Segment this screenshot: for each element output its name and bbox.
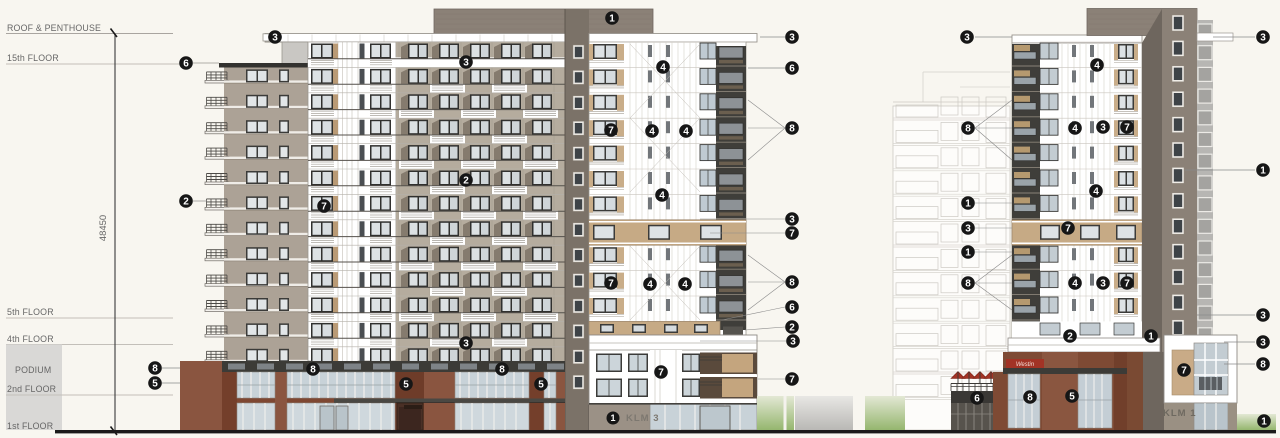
svg-text:3: 3 [789, 33, 795, 44]
svg-text:ROOF & PENTHOUSE: ROOF & PENTHOUSE [7, 23, 101, 33]
svg-text:5th FLOOR: 5th FLOOR [7, 307, 54, 317]
svg-text:7: 7 [608, 126, 614, 137]
svg-text:2: 2 [183, 197, 189, 208]
svg-text:1: 1 [1148, 332, 1154, 343]
svg-text:2: 2 [463, 176, 469, 187]
svg-text:1st FLOOR: 1st FLOOR [7, 421, 53, 431]
svg-text:7: 7 [321, 202, 327, 213]
svg-text:8: 8 [499, 365, 505, 376]
svg-text:3: 3 [1260, 338, 1266, 349]
svg-text:6: 6 [183, 59, 189, 70]
svg-text:2nd FLOOR: 2nd FLOOR [7, 384, 56, 394]
svg-text:4: 4 [1093, 187, 1099, 198]
svg-text:8: 8 [1260, 360, 1266, 371]
svg-text:1: 1 [965, 248, 971, 259]
svg-text:8: 8 [1027, 393, 1033, 404]
svg-text:3: 3 [1100, 123, 1106, 134]
svg-text:7: 7 [789, 375, 795, 386]
svg-text:3: 3 [1260, 311, 1266, 322]
svg-text:1: 1 [1261, 417, 1267, 428]
svg-text:1: 1 [1260, 166, 1266, 177]
svg-text:8: 8 [965, 279, 971, 290]
svg-text:5: 5 [1069, 392, 1075, 403]
svg-text:7: 7 [658, 368, 664, 379]
svg-text:3: 3 [272, 33, 278, 44]
svg-text:4: 4 [683, 127, 689, 138]
svg-text:6: 6 [789, 64, 795, 75]
svg-text:4: 4 [649, 127, 655, 138]
svg-text:2: 2 [789, 323, 795, 334]
svg-text:4: 4 [1072, 279, 1078, 290]
svg-text:4: 4 [1094, 61, 1100, 72]
svg-text:7: 7 [789, 229, 795, 240]
svg-text:8: 8 [789, 278, 795, 289]
svg-text:8: 8 [152, 364, 158, 375]
svg-text:3: 3 [1100, 279, 1106, 290]
svg-text:7: 7 [1065, 224, 1071, 235]
svg-text:3: 3 [790, 337, 796, 348]
svg-text:4: 4 [647, 280, 653, 291]
svg-text:1: 1 [609, 14, 615, 25]
svg-text:1: 1 [965, 199, 971, 210]
svg-text:4: 4 [1072, 124, 1078, 135]
svg-text:7: 7 [1124, 279, 1130, 290]
svg-text:3: 3 [789, 215, 795, 226]
svg-text:3: 3 [463, 58, 469, 69]
svg-text:KLM 1: KLM 1 [1163, 408, 1197, 419]
svg-text:8: 8 [965, 124, 971, 135]
svg-text:6: 6 [974, 394, 980, 405]
svg-text:48450: 48450 [98, 215, 109, 241]
svg-text:8: 8 [789, 124, 795, 135]
svg-text:5: 5 [152, 379, 158, 390]
svg-text:3: 3 [964, 33, 970, 44]
svg-text:7: 7 [1124, 123, 1130, 134]
svg-text:4th FLOOR: 4th FLOOR [7, 334, 54, 344]
svg-text:1: 1 [610, 413, 615, 423]
svg-text:8: 8 [310, 365, 316, 376]
svg-text:4: 4 [682, 280, 688, 291]
svg-text:15th FLOOR: 15th FLOOR [7, 53, 59, 63]
svg-text:KLM 3: KLM 3 [626, 413, 660, 424]
svg-text:Westin: Westin [1016, 362, 1035, 368]
svg-text:5: 5 [538, 380, 544, 391]
svg-text:7: 7 [1181, 366, 1187, 377]
svg-text:6: 6 [789, 303, 795, 314]
svg-text:2: 2 [1067, 332, 1073, 343]
svg-text:3: 3 [1260, 33, 1266, 44]
svg-text:5: 5 [403, 380, 409, 391]
svg-text:7: 7 [608, 279, 614, 290]
svg-text:3: 3 [965, 224, 971, 235]
svg-text:PODIUM: PODIUM [15, 365, 51, 375]
svg-text:4: 4 [659, 191, 665, 202]
svg-text:3: 3 [463, 339, 469, 350]
svg-text:4: 4 [660, 63, 666, 74]
